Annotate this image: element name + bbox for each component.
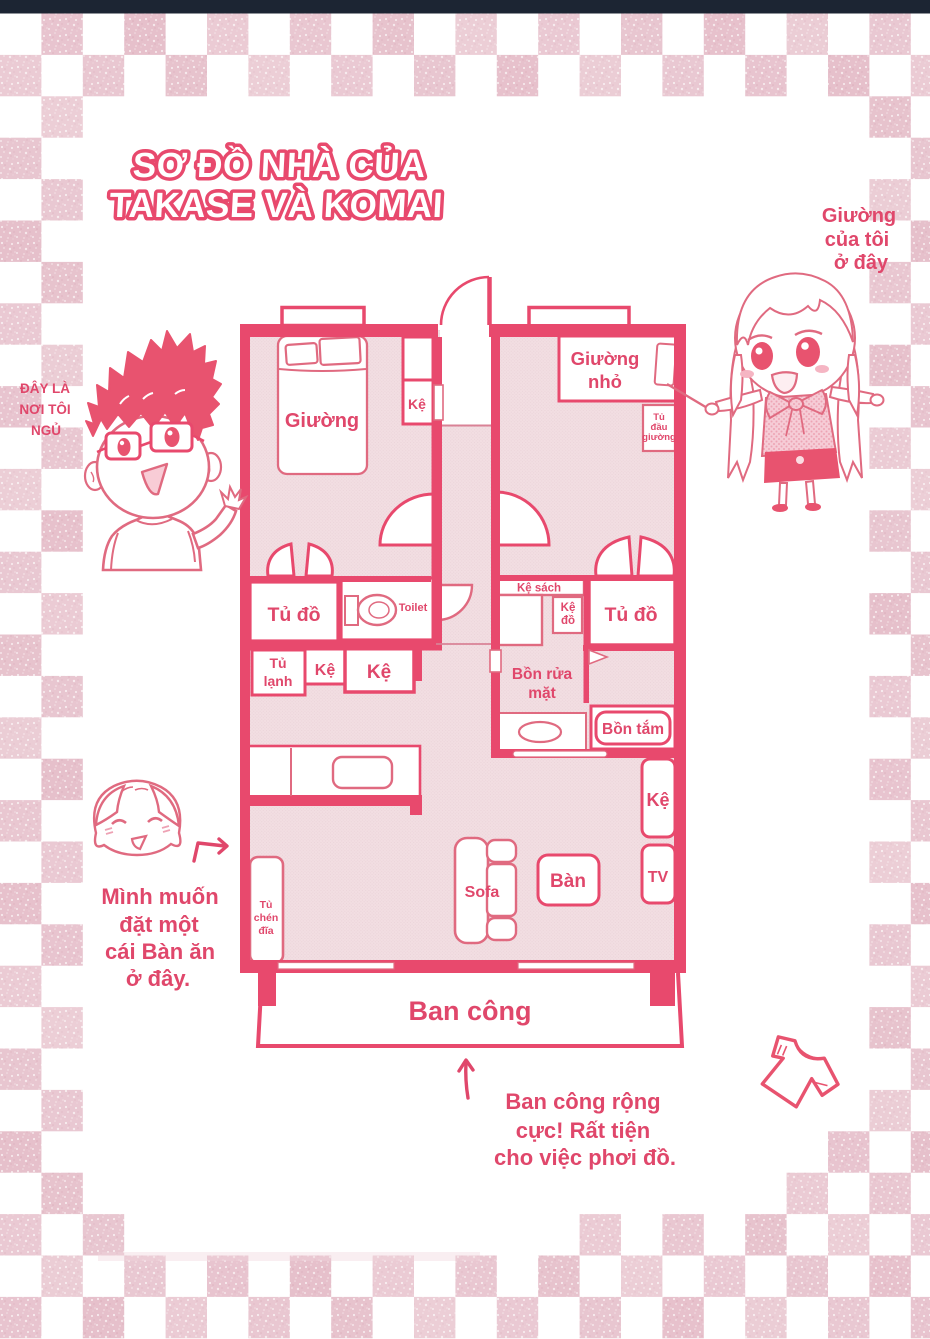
svg-text:TV: TV <box>648 869 669 886</box>
svg-text:Tủ đồ: Tủ đồ <box>267 604 320 626</box>
svg-text:cái Bàn ăn: cái Bàn ăn <box>105 939 215 964</box>
svg-text:giường: giường <box>642 432 676 443</box>
svg-text:lạnh: lạnh <box>264 673 293 689</box>
svg-text:NGỦ: NGỦ <box>31 423 61 438</box>
svg-text:Mình muốn: Mình muốn <box>101 884 218 909</box>
svg-text:Toilet: Toilet <box>399 602 428 614</box>
svg-text:NƠI TÔI: NƠI TÔI <box>19 402 70 417</box>
svg-text:Kệ: Kệ <box>367 662 391 683</box>
svg-text:nhỏ: nhỏ <box>588 371 622 392</box>
svg-text:Bàn: Bàn <box>550 871 586 892</box>
svg-text:ở đây.: ở đây. <box>126 966 190 991</box>
svg-text:Tủ đồ: Tủ đồ <box>604 604 657 626</box>
svg-text:đồ: đồ <box>561 615 575 627</box>
svg-text:Giường: Giường <box>822 205 896 227</box>
svg-text:Tủ: Tủ <box>260 899 273 911</box>
svg-text:Kệ: Kệ <box>561 602 576 614</box>
svg-text:TAKASE VÀ KOMAI: TAKASE VÀ KOMAI <box>108 185 444 225</box>
svg-text:của tôi: của tôi <box>825 229 889 251</box>
svg-text:chén: chén <box>254 912 279 924</box>
svg-text:Tủ: Tủ <box>269 655 286 671</box>
svg-text:SƠ ĐỒ NHÀ CỦA: SƠ ĐỒ NHÀ CỦA <box>132 145 427 185</box>
svg-text:mặt: mặt <box>528 685 556 702</box>
svg-text:Giường: Giường <box>285 410 359 432</box>
svg-text:Bồn rửa: Bồn rửa <box>512 666 573 683</box>
svg-text:Sofa: Sofa <box>465 884 500 901</box>
svg-text:Ban công rộng: Ban công rộng <box>505 1089 660 1114</box>
svg-text:Kệ: Kệ <box>408 396 426 412</box>
svg-text:Kệ: Kệ <box>646 790 669 810</box>
svg-text:cực! Rất tiện: cực! Rất tiện <box>516 1118 651 1143</box>
svg-text:đặt một: đặt một <box>119 912 199 937</box>
svg-text:ở đây: ở đây <box>834 252 889 274</box>
svg-text:Ban công: Ban công <box>408 996 531 1026</box>
svg-text:ĐÂY LÀ: ĐÂY LÀ <box>20 381 70 396</box>
svg-text:Giường: Giường <box>571 348 640 369</box>
svg-text:cho việc phơi đồ.: cho việc phơi đồ. <box>494 1145 676 1170</box>
svg-text:đĩa: đĩa <box>258 925 273 937</box>
svg-text:Kệ: Kệ <box>315 662 336 679</box>
svg-text:Kệ sách: Kệ sách <box>517 583 561 595</box>
svg-text:Bồn tắm: Bồn tắm <box>602 720 664 738</box>
